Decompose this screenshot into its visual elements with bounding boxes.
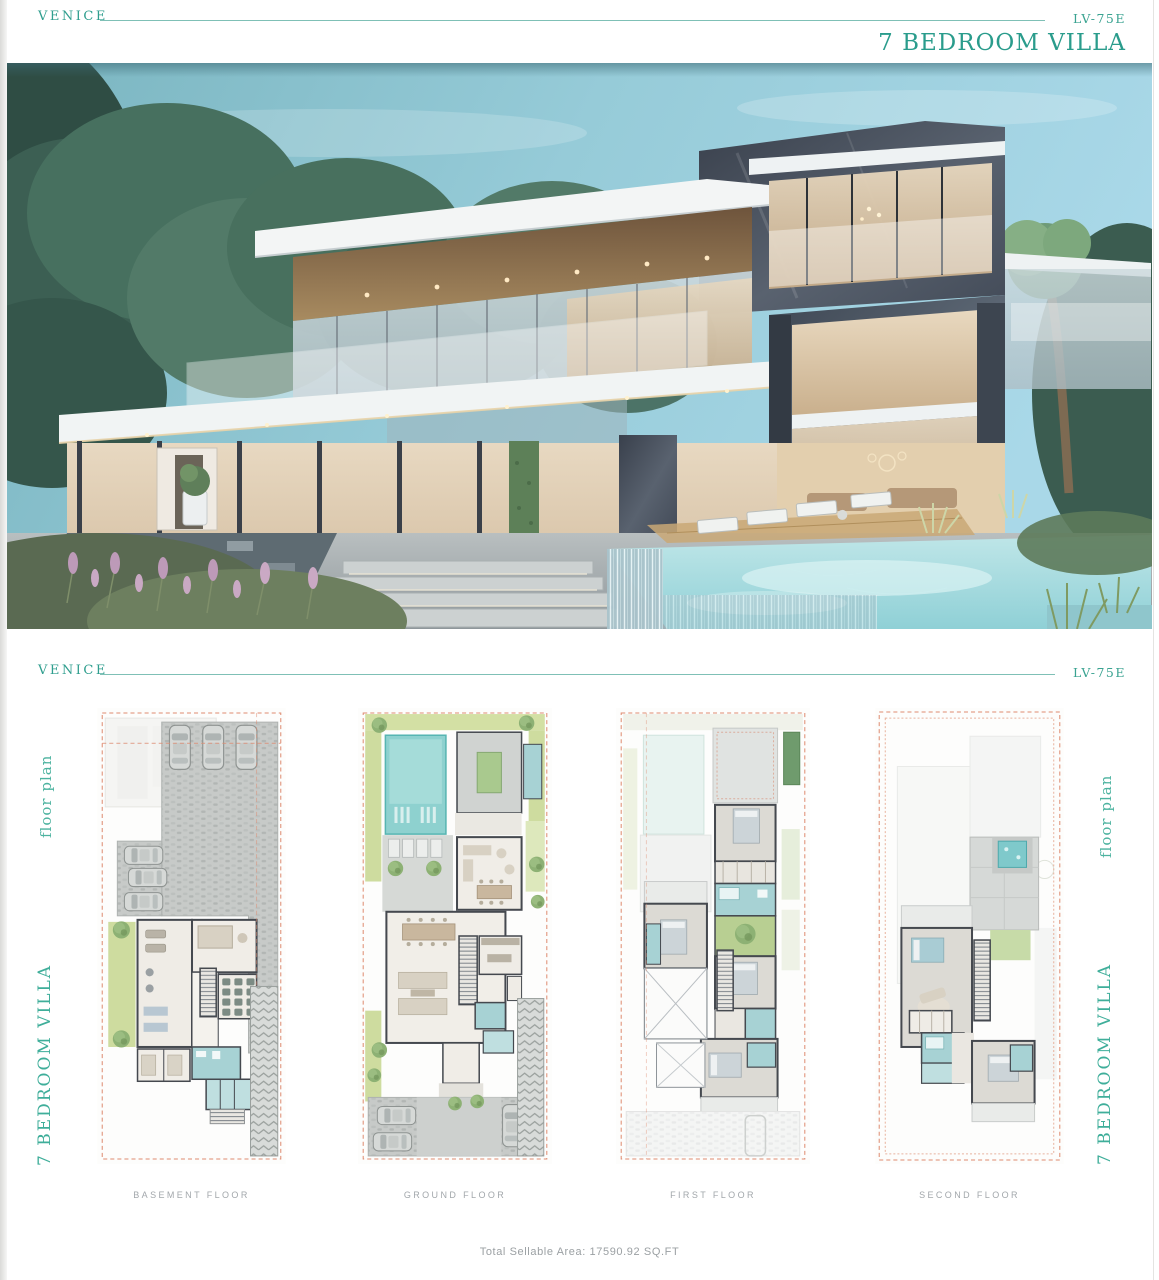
page-edge-right <box>1153 0 1154 1280</box>
ground-floor-plan <box>357 708 553 1164</box>
green-wall <box>509 441 539 535</box>
unit-code-section: LV-75E <box>1073 665 1126 680</box>
second-floor-plan <box>875 708 1064 1164</box>
glass-facade-lower <box>67 435 777 537</box>
side-label-villa-left: 7 BEDROOM VILLA <box>29 952 61 1177</box>
side-label-floor-plan-left: floor plan <box>33 740 59 852</box>
void-double-height <box>644 968 707 1039</box>
second-floor-label: SECOND FLOOR <box>875 1190 1064 1200</box>
entry-foyer <box>443 1043 479 1083</box>
balcony <box>972 1103 1035 1121</box>
villa-exterior-render <box>7 63 1152 629</box>
upper-terrace <box>713 728 778 803</box>
lawn <box>108 922 135 1047</box>
driveway-below <box>626 1112 800 1156</box>
page-edge-left <box>0 0 7 1280</box>
page-title: 7 BEDROOM VILLA <box>878 30 1126 56</box>
first-floor-label: FIRST FLOOR <box>615 1190 811 1200</box>
jacuzzi <box>998 841 1026 867</box>
ground-floor-label: GROUND FLOOR <box>357 1190 553 1200</box>
car-ramp <box>518 999 544 1156</box>
side-label-floor-plan-right: floor plan <box>1093 760 1119 872</box>
balcony <box>901 906 972 928</box>
total-sellable-area: Total Sellable Area: 17590.92 SQ.FT <box>0 1246 1159 1258</box>
stairs <box>717 950 733 1011</box>
project-name-section: VENICE <box>38 663 108 678</box>
stairs <box>200 968 216 1016</box>
green-patch <box>990 930 1030 960</box>
stairs <box>459 936 477 1005</box>
brochure-page: VENICE LV-75E 7 BEDROOM VILLA <box>0 0 1159 1280</box>
car-ramp <box>251 986 278 1155</box>
header-divider-section <box>100 674 1055 675</box>
first-floor-plan <box>615 708 811 1164</box>
shower-rooms <box>206 1079 252 1109</box>
dressing-room <box>909 1011 951 1033</box>
side-label-villa-right: 7 BEDROOM VILLA <box>1089 950 1121 1178</box>
basement-floor-label: BASEMENT FLOOR <box>97 1190 286 1200</box>
header-divider-top <box>100 20 1045 21</box>
stairs <box>974 940 990 1021</box>
dressing-room <box>715 861 776 883</box>
open-to-sky <box>657 1043 705 1087</box>
unit-code-top: LV-75E <box>1073 11 1126 26</box>
basement-floor-plan <box>97 708 286 1164</box>
balcony <box>644 882 707 904</box>
planter <box>784 732 800 784</box>
bathroom <box>475 1003 505 1029</box>
project-name-top: VENICE <box>38 9 108 24</box>
